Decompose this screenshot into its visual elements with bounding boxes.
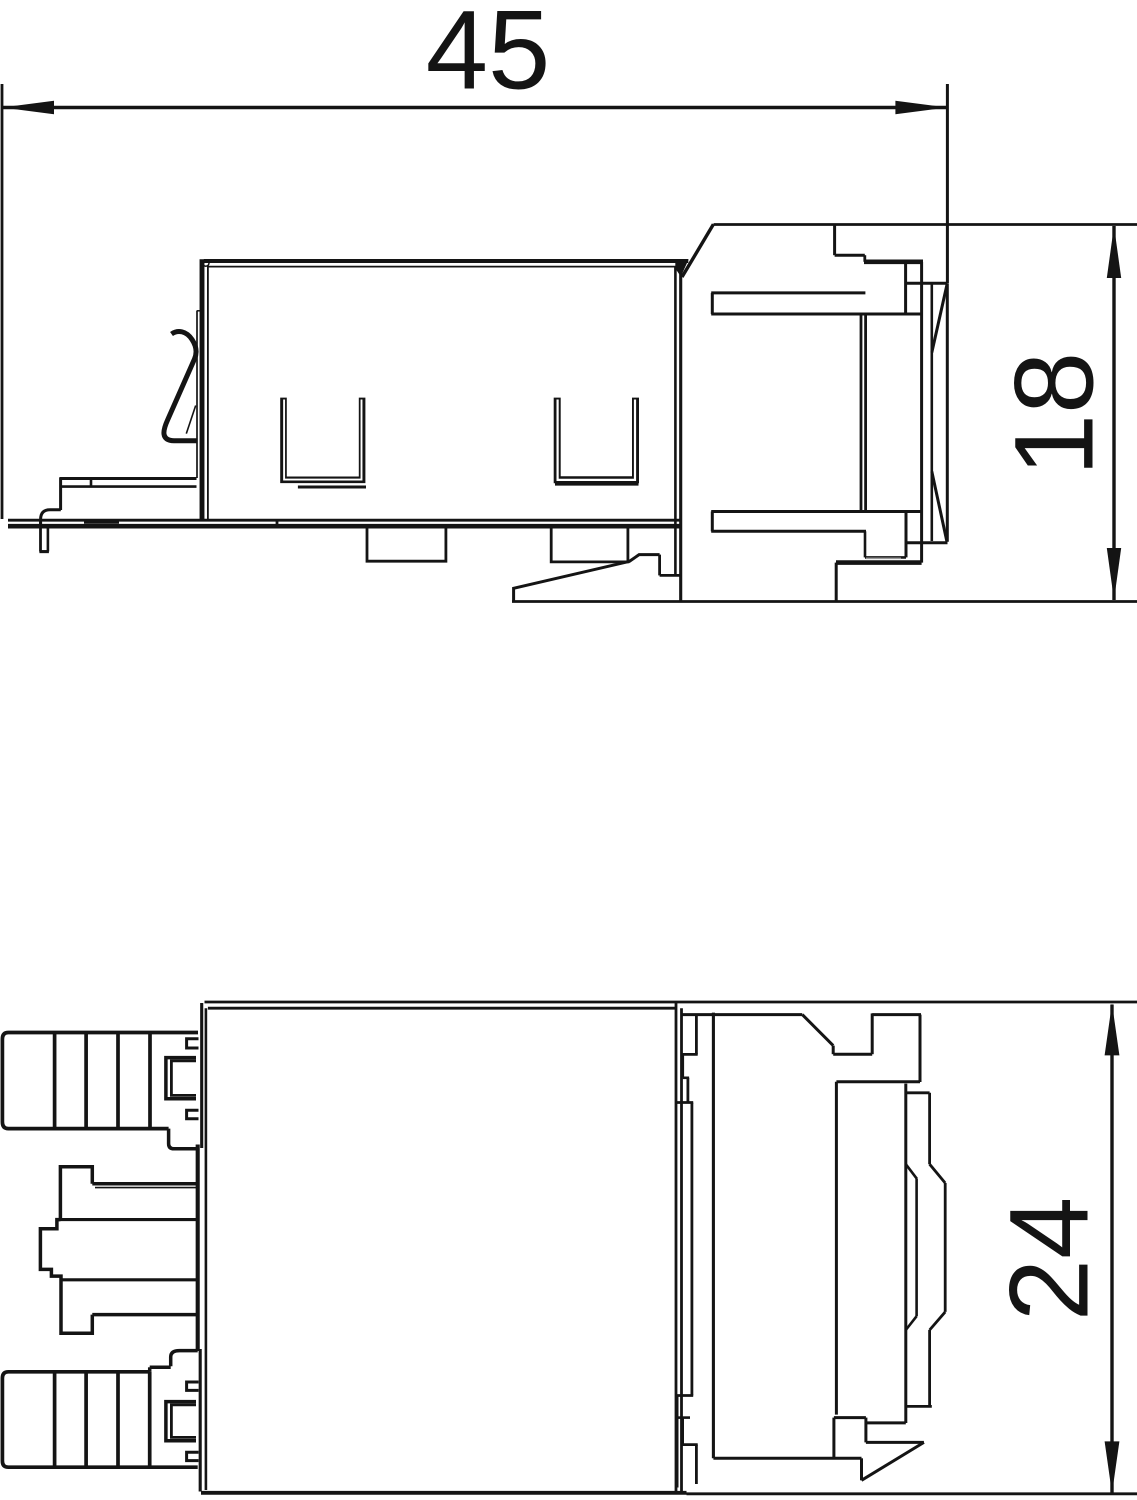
svg-text:18: 18 <box>992 352 1117 477</box>
svg-text:45: 45 <box>426 0 551 113</box>
svg-text:24: 24 <box>987 1197 1112 1322</box>
